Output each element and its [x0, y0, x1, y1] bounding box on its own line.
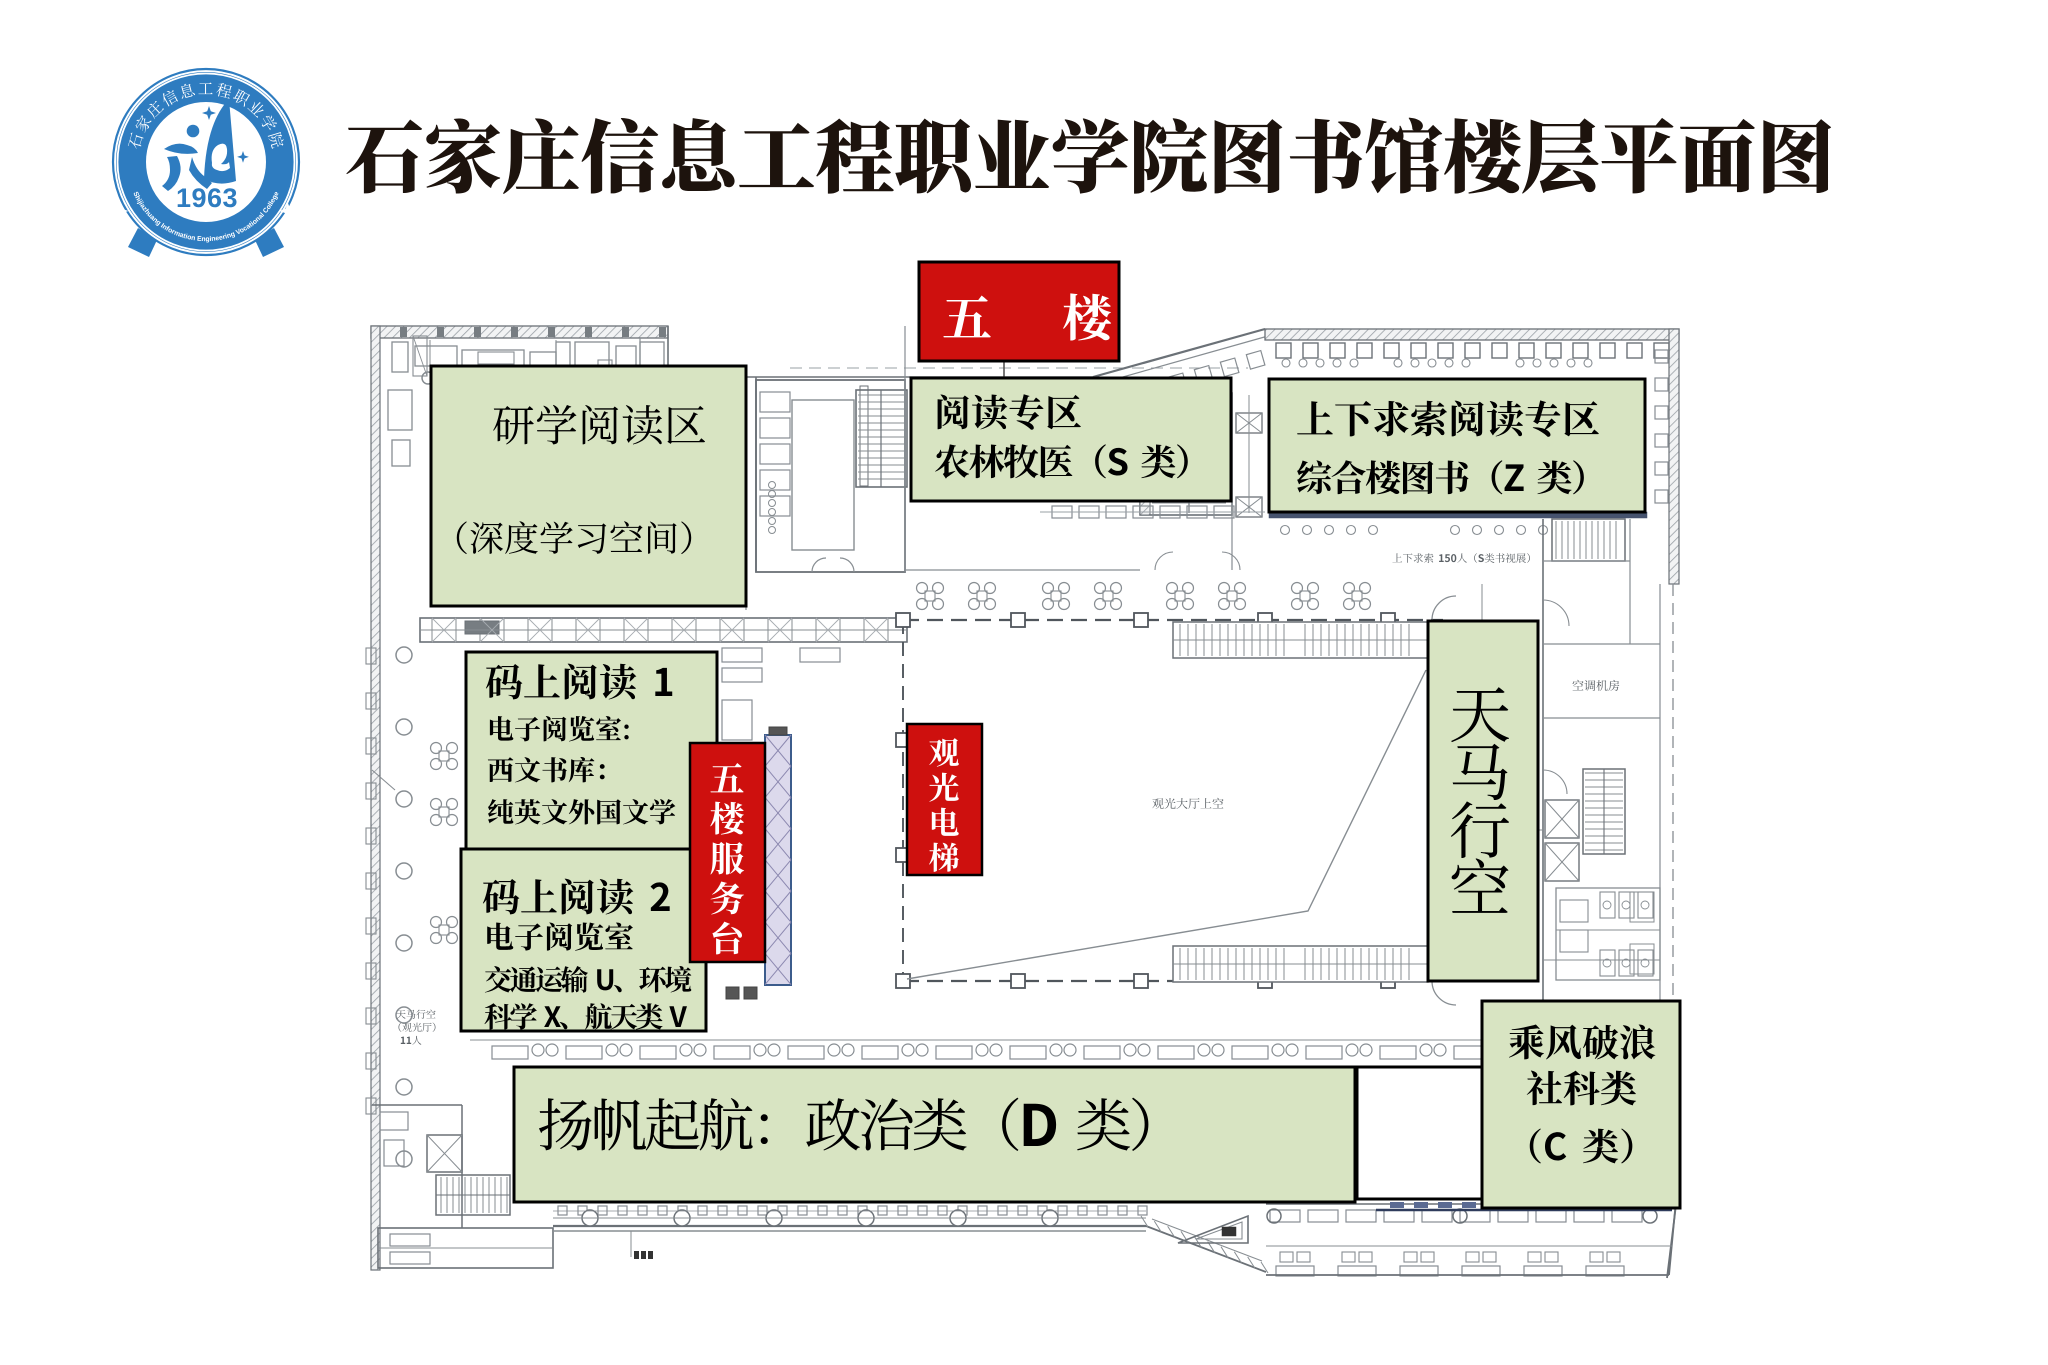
svg-text:1963: 1963: [176, 183, 238, 213]
